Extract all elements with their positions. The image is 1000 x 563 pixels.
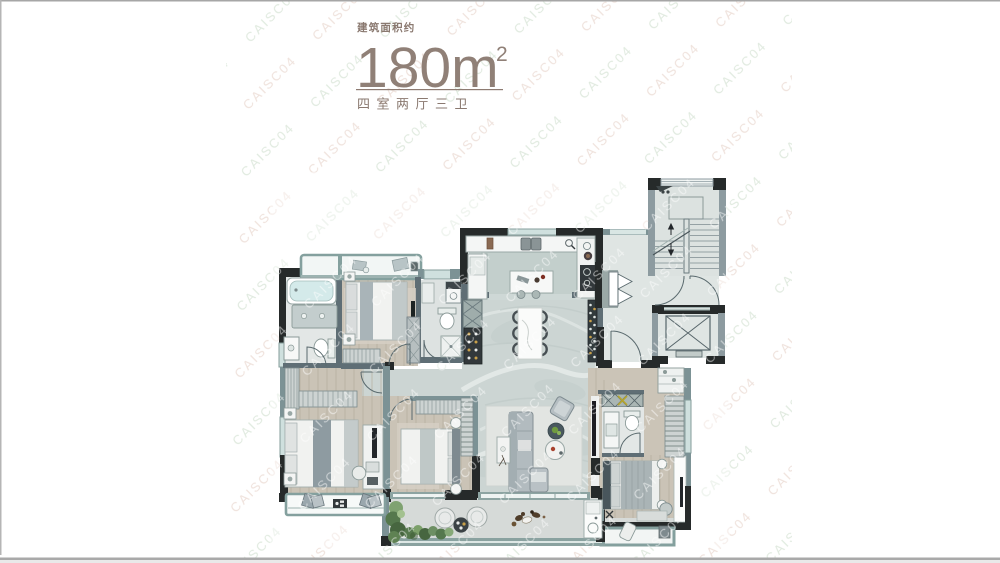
svg-text:四室两厅三卫: 四室两厅三卫 — [357, 97, 474, 112]
svg-text:2: 2 — [496, 43, 508, 66]
svg-text:建筑面积约: 建筑面积约 — [356, 21, 416, 34]
svg-text:180m: 180m — [356, 36, 499, 100]
